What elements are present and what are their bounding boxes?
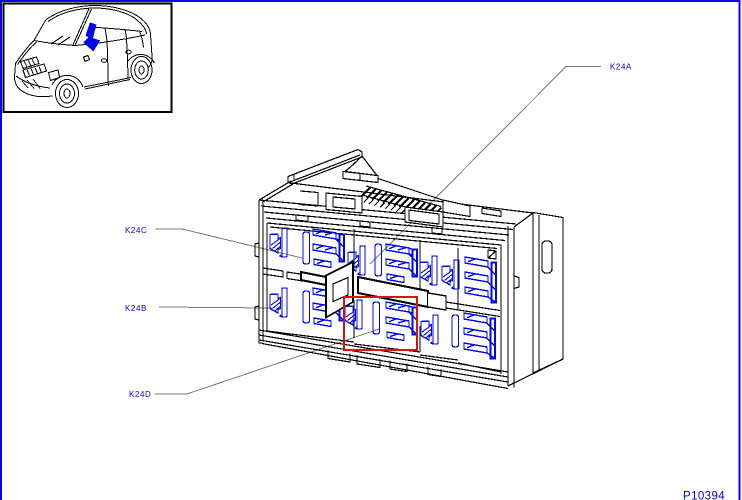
svg-text:K24C: K24C [125, 226, 147, 235]
svg-text:K24D: K24D [129, 390, 151, 399]
svg-text:P10394: P10394 [683, 491, 725, 500]
svg-text:K24B: K24B [125, 304, 147, 313]
svg-text:K24A: K24A [610, 63, 632, 72]
